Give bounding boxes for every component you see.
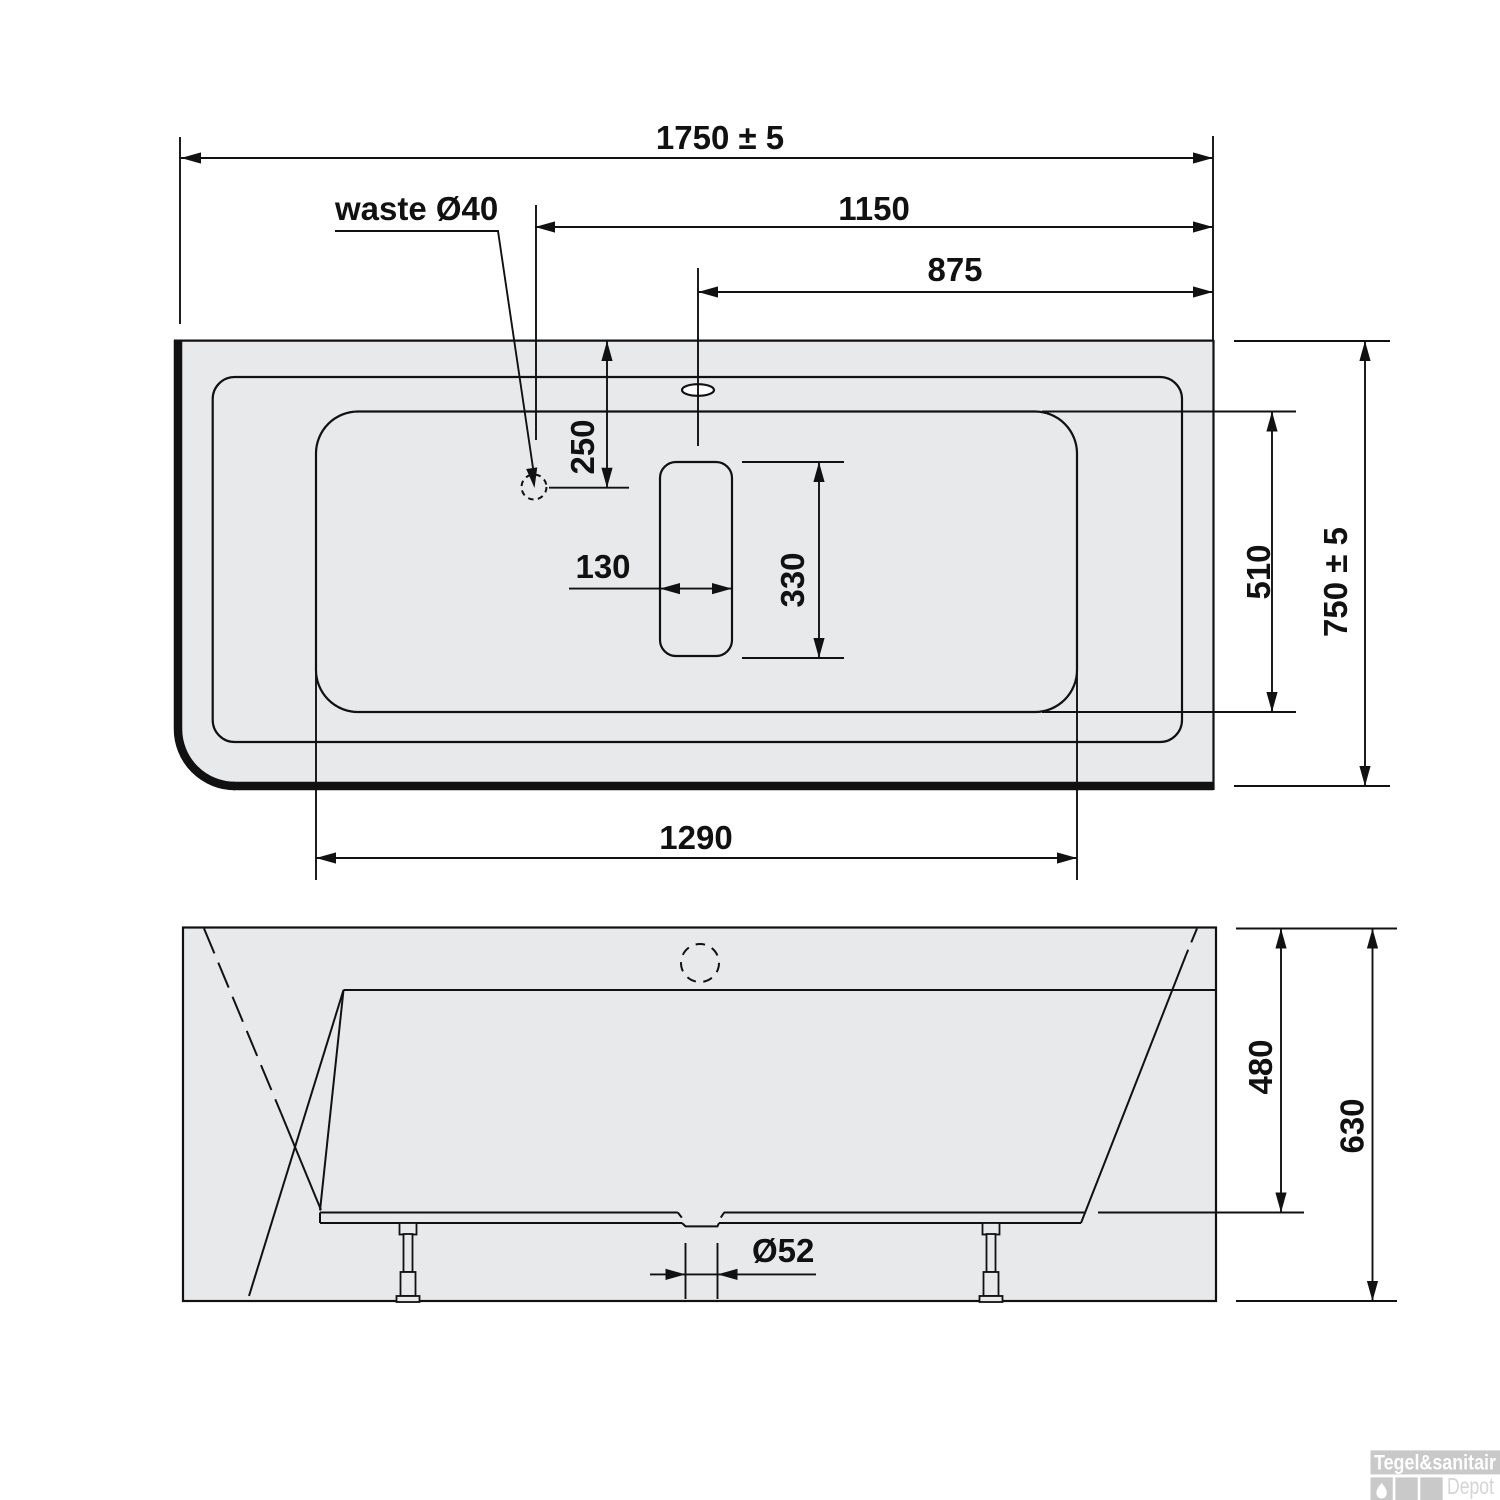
svg-text:Ø52: Ø52 (752, 1232, 814, 1269)
svg-text:630: 630 (1334, 1098, 1371, 1153)
svg-text:750 ± 5: 750 ± 5 (1317, 527, 1354, 637)
svg-text:Depot: Depot (1447, 1473, 1494, 1499)
svg-text:480: 480 (1242, 1039, 1279, 1094)
svg-text:Tegel&sanitair: Tegel&sanitair (1374, 1452, 1496, 1475)
svg-text:510: 510 (1240, 544, 1277, 599)
svg-text:1750 ± 5: 1750 ± 5 (656, 119, 784, 156)
svg-text:1290: 1290 (659, 819, 732, 856)
svg-text:1150: 1150 (838, 190, 910, 227)
svg-text:130: 130 (575, 548, 630, 585)
svg-text:waste Ø40: waste Ø40 (334, 190, 498, 227)
svg-text:875: 875 (927, 251, 982, 288)
svg-text:330: 330 (774, 552, 811, 607)
svg-text:250: 250 (564, 419, 601, 474)
